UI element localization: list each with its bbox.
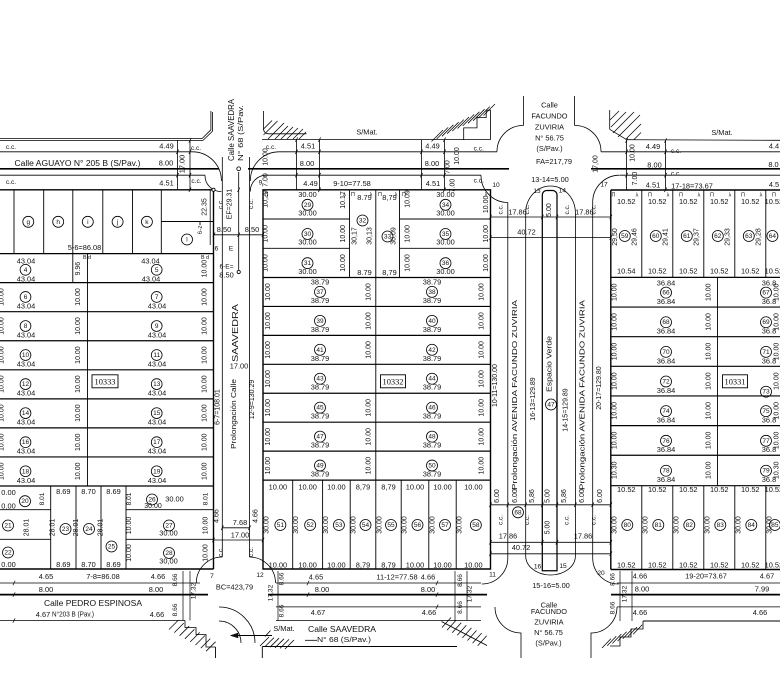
svg-text:6.00: 6.00 — [597, 489, 604, 503]
svg-text:7.99: 7.99 — [755, 585, 769, 594]
svg-text:30.00: 30.00 — [264, 516, 271, 534]
svg-text:38.79: 38.79 — [311, 441, 330, 450]
svg-text:9.96: 9.96 — [75, 262, 82, 276]
svg-text:10.52: 10.52 — [710, 266, 729, 275]
svg-text:4.67: 4.67 — [36, 610, 50, 619]
svg-text:10.00: 10.00 — [483, 196, 490, 214]
svg-text:36.84: 36.84 — [657, 279, 676, 288]
svg-text:10.00: 10.00 — [75, 288, 82, 306]
svg-text:10.00: 10.00 — [327, 560, 346, 569]
svg-text:10.00: 10.00 — [126, 544, 133, 562]
svg-text:30.00: 30.00 — [436, 238, 455, 247]
svg-text:λ: λ — [485, 192, 488, 198]
svg-text:30.00: 30.00 — [436, 208, 455, 217]
svg-text:29,28: 29,28 — [756, 228, 763, 246]
svg-text:38.79: 38.79 — [311, 296, 330, 305]
svg-text:10.00: 10.00 — [340, 225, 347, 243]
svg-text:S/Mat.: S/Mat. — [356, 128, 377, 137]
svg-text:30,13: 30,13 — [367, 227, 374, 245]
svg-text:5.00: 5.00 — [545, 521, 552, 535]
svg-text:ZUVIRIA: ZUVIRIA — [534, 618, 563, 627]
svg-text:5: 5 — [155, 267, 159, 274]
svg-text:10.00: 10.00 — [202, 375, 209, 393]
svg-text:38.79: 38.79 — [423, 325, 442, 334]
svg-text:10.00: 10.00 — [75, 317, 82, 335]
svg-text:Calle SAAVEDRA: Calle SAAVEDRA — [308, 625, 377, 634]
svg-text:8,79: 8,79 — [381, 560, 395, 569]
svg-text:30.00: 30.00 — [159, 529, 178, 538]
svg-text:9-10=77.58: 9-10=77.58 — [333, 179, 371, 188]
svg-text:29,46: 29,46 — [632, 228, 639, 246]
svg-text:10.00: 10.00 — [630, 144, 637, 162]
svg-text:Π: Π — [648, 193, 652, 199]
svg-text:38: 38 — [428, 289, 436, 296]
svg-text:10.54: 10.54 — [617, 266, 636, 275]
svg-text:10.00: 10.00 — [483, 225, 490, 243]
svg-text:10.00: 10.00 — [366, 457, 373, 475]
svg-text:ZUVIRIA: ZUVIRIA — [535, 123, 564, 132]
svg-text:8.79: 8.79 — [357, 268, 371, 277]
svg-text:19: 19 — [153, 468, 161, 475]
svg-text:10.00: 10.00 — [263, 148, 270, 166]
svg-text:30.00: 30.00 — [298, 190, 317, 199]
svg-text:58: 58 — [472, 522, 480, 529]
svg-text:14: 14 — [22, 410, 30, 417]
svg-text:79: 79 — [762, 468, 770, 475]
svg-text:c.c.: c.c. — [524, 515, 531, 525]
svg-text:8.00: 8.00 — [300, 159, 314, 168]
svg-text:29,37: 29,37 — [694, 228, 701, 246]
svg-text:10.00: 10.00 — [203, 517, 210, 535]
svg-text:10.00: 10.00 — [0, 433, 6, 451]
svg-text:N°203 B (Pav.): N°203 B (Pav.) — [52, 610, 94, 619]
svg-text:43.04: 43.04 — [17, 331, 36, 340]
svg-text:76: 76 — [662, 438, 670, 445]
svg-text:10.00: 10.00 — [454, 147, 461, 165]
svg-text:Π: Π — [772, 193, 776, 199]
svg-text:B d: B d — [83, 255, 91, 261]
svg-text:56: 56 — [414, 522, 422, 529]
svg-text:70: 70 — [662, 349, 670, 356]
svg-text:10.00: 10.00 — [479, 312, 486, 330]
svg-text:10.00: 10.00 — [774, 402, 780, 420]
svg-text:43.04: 43.04 — [148, 389, 167, 398]
svg-text:c.c.: c.c. — [218, 199, 225, 209]
svg-text:Π: Π — [679, 193, 683, 199]
svg-text:10.00: 10.00 — [265, 341, 272, 359]
svg-text:10.00: 10.00 — [298, 482, 317, 491]
svg-text:N° 56.75: N° 56.75 — [534, 628, 563, 637]
svg-text:17,32: 17,32 — [191, 582, 198, 599]
svg-text:30.00: 30.00 — [457, 516, 464, 534]
svg-text:8.50: 8.50 — [219, 271, 233, 280]
svg-text:S/Mat.: S/Mat. — [711, 128, 732, 137]
svg-text:0.00: 0.00 — [1, 560, 15, 569]
svg-text:75: 75 — [762, 408, 770, 415]
svg-text:λ: λ — [667, 193, 670, 199]
svg-text:Π: Π — [710, 193, 714, 199]
svg-text:(S/Pav.): (S/Pav.) — [536, 144, 562, 153]
svg-text:30.00: 30.00 — [402, 516, 409, 534]
svg-text:43.04: 43.04 — [17, 418, 36, 427]
svg-text:17.86: 17.86 — [508, 207, 527, 216]
svg-text:10.52: 10.52 — [741, 266, 760, 275]
svg-text:Π: Π — [612, 193, 616, 199]
svg-text:29,33: 29,33 — [725, 228, 732, 246]
svg-text:13-14=5.00: 13-14=5.00 — [531, 175, 569, 184]
svg-text:10.00: 10.00 — [265, 399, 272, 417]
svg-text:10.00: 10.00 — [406, 482, 425, 491]
svg-text:Calle SAAVEDRA: Calle SAAVEDRA — [227, 98, 236, 161]
svg-text:36.84: 36.84 — [657, 475, 676, 484]
svg-text:8.00: 8.00 — [39, 585, 53, 594]
svg-text:30.00: 30.00 — [704, 516, 711, 534]
svg-text:43.04: 43.04 — [17, 389, 36, 398]
svg-text:c.c.: c.c. — [564, 204, 571, 214]
svg-text:30.00: 30.00 — [611, 516, 618, 534]
svg-text:17.86: 17.86 — [575, 207, 594, 216]
svg-text:10.00: 10.00 — [706, 402, 713, 420]
svg-text:6.00: 6.00 — [494, 489, 501, 503]
svg-text:4.66: 4.66 — [421, 572, 435, 581]
svg-text:10: 10 — [492, 182, 500, 189]
svg-text:28.01: 28.01 — [24, 519, 31, 537]
svg-text:36.84: 36.84 — [657, 416, 676, 425]
svg-text:23: 23 — [62, 526, 70, 533]
svg-text:10.00: 10.00 — [263, 225, 270, 243]
svg-text:λ: λ — [698, 193, 701, 199]
svg-text:22: 22 — [4, 550, 12, 557]
svg-text:10.00: 10.00 — [0, 317, 6, 335]
svg-text:4: 4 — [24, 267, 28, 274]
svg-text:10.00: 10.00 — [612, 343, 619, 361]
svg-text:h: h — [56, 219, 60, 226]
svg-text:43.04: 43.04 — [148, 360, 167, 369]
svg-text:38.79: 38.79 — [423, 354, 442, 363]
svg-text:30.00: 30.00 — [436, 267, 455, 276]
svg-text:17.00: 17.00 — [230, 362, 249, 371]
svg-text:10.52: 10.52 — [765, 561, 780, 570]
svg-text:SAAVEDRA: SAAVEDRA — [231, 303, 240, 362]
svg-text:Calle AGUAYO N° 205 B (S/Pav: Calle AGUAYO N° 205 B (S/Pav.) — [15, 159, 141, 168]
svg-text:40.72: 40.72 — [517, 228, 536, 237]
svg-text:10.52: 10.52 — [765, 197, 780, 206]
svg-text:30.00: 30.00 — [642, 516, 649, 534]
svg-text:10.52: 10.52 — [710, 561, 729, 570]
svg-text:10.00: 10.00 — [612, 372, 619, 390]
svg-text:10.00: 10.00 — [202, 317, 209, 335]
svg-text:51: 51 — [277, 522, 285, 529]
svg-text:10.00: 10.00 — [774, 432, 780, 450]
svg-text:10.00: 10.00 — [298, 560, 317, 569]
svg-text:10.00: 10.00 — [269, 482, 288, 491]
svg-text:8.00: 8.00 — [315, 585, 329, 594]
svg-text:62: 62 — [714, 233, 722, 240]
svg-text:30.00: 30.00 — [298, 208, 317, 217]
svg-text:c.c.: c.c. — [474, 145, 484, 152]
svg-text:16: 16 — [534, 564, 542, 571]
svg-text:10.00: 10.00 — [479, 341, 486, 359]
svg-text:9: 9 — [155, 323, 159, 330]
svg-text:10333: 10333 — [95, 378, 116, 387]
svg-text:55: 55 — [387, 522, 395, 529]
svg-text:17,32: 17,32 — [621, 585, 628, 602]
svg-text:10.00: 10.00 — [612, 402, 619, 420]
svg-text:43.04: 43.04 — [148, 418, 167, 427]
svg-text:38.79: 38.79 — [423, 278, 442, 287]
svg-text:8.69: 8.69 — [106, 487, 120, 496]
svg-text:4.49: 4.49 — [425, 142, 439, 151]
svg-text:10.00: 10.00 — [479, 399, 486, 417]
svg-text:16: 16 — [22, 439, 30, 446]
svg-text:8.01: 8.01 — [203, 492, 210, 505]
svg-text:19-20=73.67: 19-20=73.67 — [685, 572, 727, 581]
svg-text:10.52: 10.52 — [648, 561, 667, 570]
svg-text:10.00: 10.00 — [405, 225, 412, 243]
svg-text:N° 68 (S/Pav.: N° 68 (S/Pav. — [236, 105, 245, 161]
svg-text:10.00: 10.00 — [75, 375, 82, 393]
svg-text:36.84: 36.84 — [657, 386, 676, 395]
svg-text:c.c.: c.c. — [497, 204, 504, 214]
svg-text:10.00: 10.00 — [202, 260, 209, 278]
svg-text:36.84: 36.84 — [657, 356, 676, 365]
svg-text:16-13=129.89: 16-13=129.89 — [530, 377, 537, 421]
svg-text:10.52: 10.52 — [679, 485, 698, 494]
svg-text:8.00: 8.00 — [421, 585, 435, 594]
svg-text:8.01: 8.01 — [39, 492, 46, 505]
svg-text:10.30: 10.30 — [612, 461, 619, 479]
svg-text:8.69: 8.69 — [56, 487, 70, 496]
svg-text:29,50: 29,50 — [612, 228, 619, 246]
svg-text:10.00: 10.00 — [202, 462, 209, 480]
svg-text:λ: λ — [729, 193, 732, 199]
svg-text:10.00: 10.00 — [366, 312, 373, 330]
svg-text:30,09: 30,09 — [391, 227, 398, 245]
svg-text:8.66: 8.66 — [457, 574, 464, 587]
svg-text:10.00: 10.00 — [706, 432, 713, 450]
svg-text:43.04: 43.04 — [142, 274, 161, 283]
svg-text:10.52: 10.52 — [679, 266, 698, 275]
svg-text:68: 68 — [514, 509, 522, 516]
svg-text:Π: Π — [265, 192, 269, 198]
svg-text:82: 82 — [686, 522, 694, 529]
svg-text:17.00: 17.00 — [231, 530, 250, 539]
svg-text:c.c.: c.c. — [6, 144, 16, 151]
svg-text:8,79: 8,79 — [381, 482, 395, 491]
svg-text:10.00: 10.00 — [433, 560, 452, 569]
svg-text:8.70: 8.70 — [81, 560, 95, 569]
svg-text:10.00: 10.00 — [75, 433, 82, 451]
svg-text:10.00: 10.00 — [327, 482, 346, 491]
svg-text:43.04: 43.04 — [148, 331, 167, 340]
svg-text:c.c.: c.c. — [497, 515, 504, 525]
svg-text:15: 15 — [153, 410, 161, 417]
svg-text:45: 45 — [316, 405, 324, 412]
svg-text:47: 47 — [547, 402, 555, 409]
svg-text:43.04: 43.04 — [17, 360, 36, 369]
svg-text:10.52: 10.52 — [741, 485, 760, 494]
svg-text:4.66: 4.66 — [214, 509, 221, 523]
svg-text:6-z=: 6-z= — [197, 221, 204, 234]
svg-text:10.00: 10.00 — [366, 399, 373, 417]
svg-text:43.04: 43.04 — [148, 447, 167, 456]
svg-text:10.00: 10.00 — [774, 283, 780, 301]
svg-text:10.52: 10.52 — [710, 485, 729, 494]
svg-text:10.00: 10.00 — [433, 482, 452, 491]
svg-text:8.70: 8.70 — [81, 487, 95, 496]
svg-text:20-17=129.80: 20-17=129.80 — [596, 366, 603, 410]
svg-text:10.00: 10.00 — [263, 254, 270, 272]
svg-text:21: 21 — [4, 523, 12, 530]
svg-text:10.00: 10.00 — [774, 313, 780, 331]
svg-text:7.00: 7.00 — [263, 173, 270, 187]
svg-text:10.00: 10.00 — [0, 462, 6, 480]
svg-text:40.72: 40.72 — [512, 543, 531, 552]
svg-text:4.51: 4.51 — [646, 180, 660, 189]
svg-text:10.00: 10.00 — [265, 428, 272, 446]
svg-text:18: 18 — [22, 468, 30, 475]
svg-text:0.00: 0.00 — [1, 488, 15, 497]
svg-text:5,86: 5,86 — [529, 489, 536, 503]
svg-text:63: 63 — [745, 233, 753, 240]
svg-text:10.00: 10.00 — [202, 404, 209, 422]
svg-text:38.79: 38.79 — [311, 354, 330, 363]
svg-text:10.52: 10.52 — [765, 266, 780, 275]
svg-text:10.00: 10.00 — [479, 283, 486, 301]
svg-text:10.52: 10.52 — [679, 561, 698, 570]
svg-text:4.66: 4.66 — [253, 509, 260, 523]
svg-text:c.c.: c.c. — [191, 145, 201, 152]
svg-text:10.00: 10.00 — [706, 372, 713, 390]
svg-text:10.00: 10.00 — [464, 482, 483, 491]
svg-text:10.52: 10.52 — [679, 197, 698, 206]
svg-text:10.00: 10.00 — [75, 346, 82, 364]
svg-text:Π: Π — [741, 193, 745, 199]
svg-text:8.69: 8.69 — [106, 560, 120, 569]
svg-text:10.00: 10.00 — [265, 370, 272, 388]
svg-text:11: 11 — [153, 352, 160, 359]
svg-text:10.52: 10.52 — [617, 561, 636, 570]
svg-text:37: 37 — [316, 289, 324, 296]
svg-text:17,32: 17,32 — [467, 585, 474, 602]
svg-text:10.00: 10.00 — [774, 343, 780, 361]
svg-text:8.66: 8.66 — [279, 604, 286, 617]
svg-text:Calle PEDRO ESPINOSA: Calle PEDRO ESPINOSA — [44, 599, 143, 608]
svg-text:38.79: 38.79 — [423, 383, 442, 392]
svg-text:8.69: 8.69 — [56, 560, 70, 569]
svg-text:i: i — [87, 219, 88, 226]
svg-text:Π: Π — [378, 192, 382, 198]
svg-text:14: 14 — [559, 187, 567, 194]
svg-text:6: 6 — [215, 246, 219, 253]
svg-text:10.00: 10.00 — [202, 433, 209, 451]
svg-text:BC=423,79: BC=423,79 — [216, 583, 253, 592]
svg-text:43.04: 43.04 — [17, 476, 36, 485]
svg-text:(S/Pav.): (S/Pav.) — [535, 639, 561, 648]
svg-text:4.67: 4.67 — [760, 572, 774, 581]
svg-text:FA=217,79: FA=217,79 — [536, 157, 572, 166]
svg-text:38.79: 38.79 — [311, 412, 330, 421]
svg-text:36.84: 36.84 — [657, 297, 676, 306]
svg-text:30.00: 30.00 — [144, 503, 162, 510]
svg-text:4.65: 4.65 — [39, 572, 53, 581]
svg-text:30.00: 30.00 — [165, 495, 184, 504]
svg-text:48: 48 — [428, 434, 436, 441]
svg-text:25: 25 — [108, 544, 116, 551]
svg-text:39: 39 — [316, 318, 324, 325]
svg-text:10.52: 10.52 — [648, 485, 667, 494]
svg-text:8.00: 8.00 — [425, 159, 439, 168]
svg-text:66: 66 — [662, 290, 670, 297]
svg-text:10.52: 10.52 — [741, 197, 760, 206]
svg-text:c.c.: c.c. — [564, 515, 571, 525]
svg-text:38.79: 38.79 — [423, 441, 442, 450]
svg-text:4.65: 4.65 — [309, 572, 323, 581]
svg-text:λ: λ — [395, 192, 398, 198]
svg-text:c.c.: c.c. — [248, 547, 255, 557]
svg-text:61: 61 — [683, 233, 691, 240]
svg-text:12: 12 — [256, 572, 264, 579]
svg-text:29,41: 29,41 — [663, 228, 670, 246]
svg-text:64: 64 — [769, 233, 777, 240]
svg-text:10.00: 10.00 — [366, 341, 373, 359]
svg-text:8,79: 8,79 — [356, 560, 370, 569]
svg-text:4.67: 4.67 — [311, 608, 325, 617]
svg-text:10.00: 10.00 — [75, 404, 82, 422]
svg-text:10.52: 10.52 — [648, 197, 667, 206]
svg-text:10.00: 10.00 — [366, 428, 373, 446]
svg-text:8.01: 8.01 — [126, 492, 133, 505]
svg-text:10.00: 10.00 — [706, 343, 713, 361]
svg-text:54: 54 — [362, 522, 370, 529]
svg-text:8.0: 8.0 — [768, 160, 778, 169]
svg-text:6.00: 6.00 — [579, 489, 586, 503]
svg-text:14-15=129.89: 14-15=129.89 — [563, 388, 570, 432]
svg-text:10.00: 10.00 — [0, 375, 6, 393]
svg-text:46: 46 — [428, 405, 436, 412]
svg-text:60: 60 — [652, 233, 660, 240]
svg-text:24: 24 — [85, 526, 93, 533]
svg-text:6.00: 6.00 — [512, 489, 519, 503]
svg-text:38.79: 38.79 — [311, 383, 330, 392]
svg-text:6-7=108.01: 6-7=108.01 — [215, 389, 222, 425]
svg-text:10.00: 10.00 — [479, 370, 486, 388]
svg-text:Π: Π — [351, 192, 355, 198]
svg-text:43: 43 — [316, 376, 324, 383]
svg-text:67: 67 — [762, 290, 770, 297]
svg-text:77: 77 — [762, 438, 770, 445]
svg-text:Espacio Verde: Espacio Verde — [545, 336, 554, 392]
svg-text:42: 42 — [428, 347, 436, 354]
svg-text:10.00: 10.00 — [202, 288, 209, 306]
svg-text:λ: λ — [370, 192, 373, 198]
svg-text:10.00: 10.00 — [479, 428, 486, 446]
svg-text:10.00: 10.00 — [126, 517, 133, 535]
svg-text:72: 72 — [662, 379, 670, 386]
svg-text:7.68: 7.68 — [233, 518, 247, 527]
svg-text:FACUNDO: FACUNDO — [531, 112, 567, 121]
svg-text:E: E — [229, 246, 234, 253]
svg-text:10.00: 10.00 — [464, 560, 483, 569]
svg-text:8.66: 8.66 — [172, 573, 179, 586]
svg-text:36.84: 36.84 — [657, 445, 676, 454]
svg-text:8.00: 8.00 — [635, 585, 649, 594]
svg-text:38.79: 38.79 — [311, 470, 330, 479]
svg-text:Prolongación AVENIDA FACUNDO: Prolongación AVENIDA FACUNDO ZUVIRIA — [577, 300, 586, 490]
svg-text:30.00: 30.00 — [351, 516, 358, 534]
svg-text:8.66: 8.66 — [172, 603, 179, 616]
svg-text:Calle: Calle — [541, 101, 558, 110]
